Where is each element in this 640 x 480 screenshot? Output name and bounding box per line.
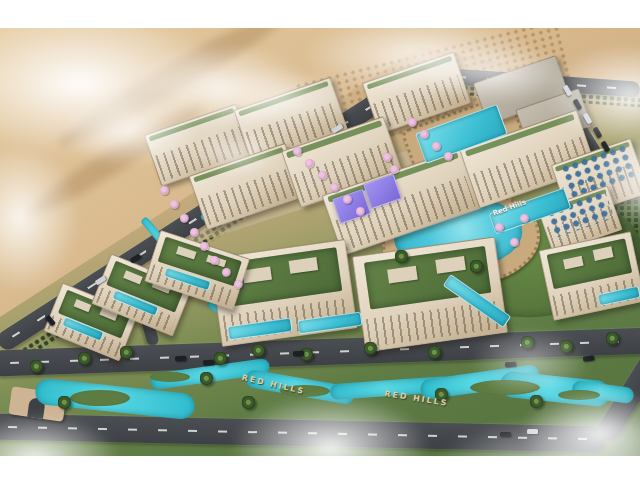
- aerial-render-photo: Red Hills RED HILLS RED HILLS: [0, 28, 640, 456]
- cloud: [0, 413, 120, 456]
- cloud-layer: [0, 28, 640, 456]
- cloud: [600, 168, 640, 228]
- cloud: [230, 393, 430, 456]
- cloud: [470, 328, 590, 398]
- page-frame: Red Hills RED HILLS RED HILLS: [0, 0, 640, 480]
- cloud: [60, 93, 200, 168]
- cloud: [520, 388, 640, 456]
- cloud: [190, 128, 280, 178]
- cloud: [200, 68, 360, 128]
